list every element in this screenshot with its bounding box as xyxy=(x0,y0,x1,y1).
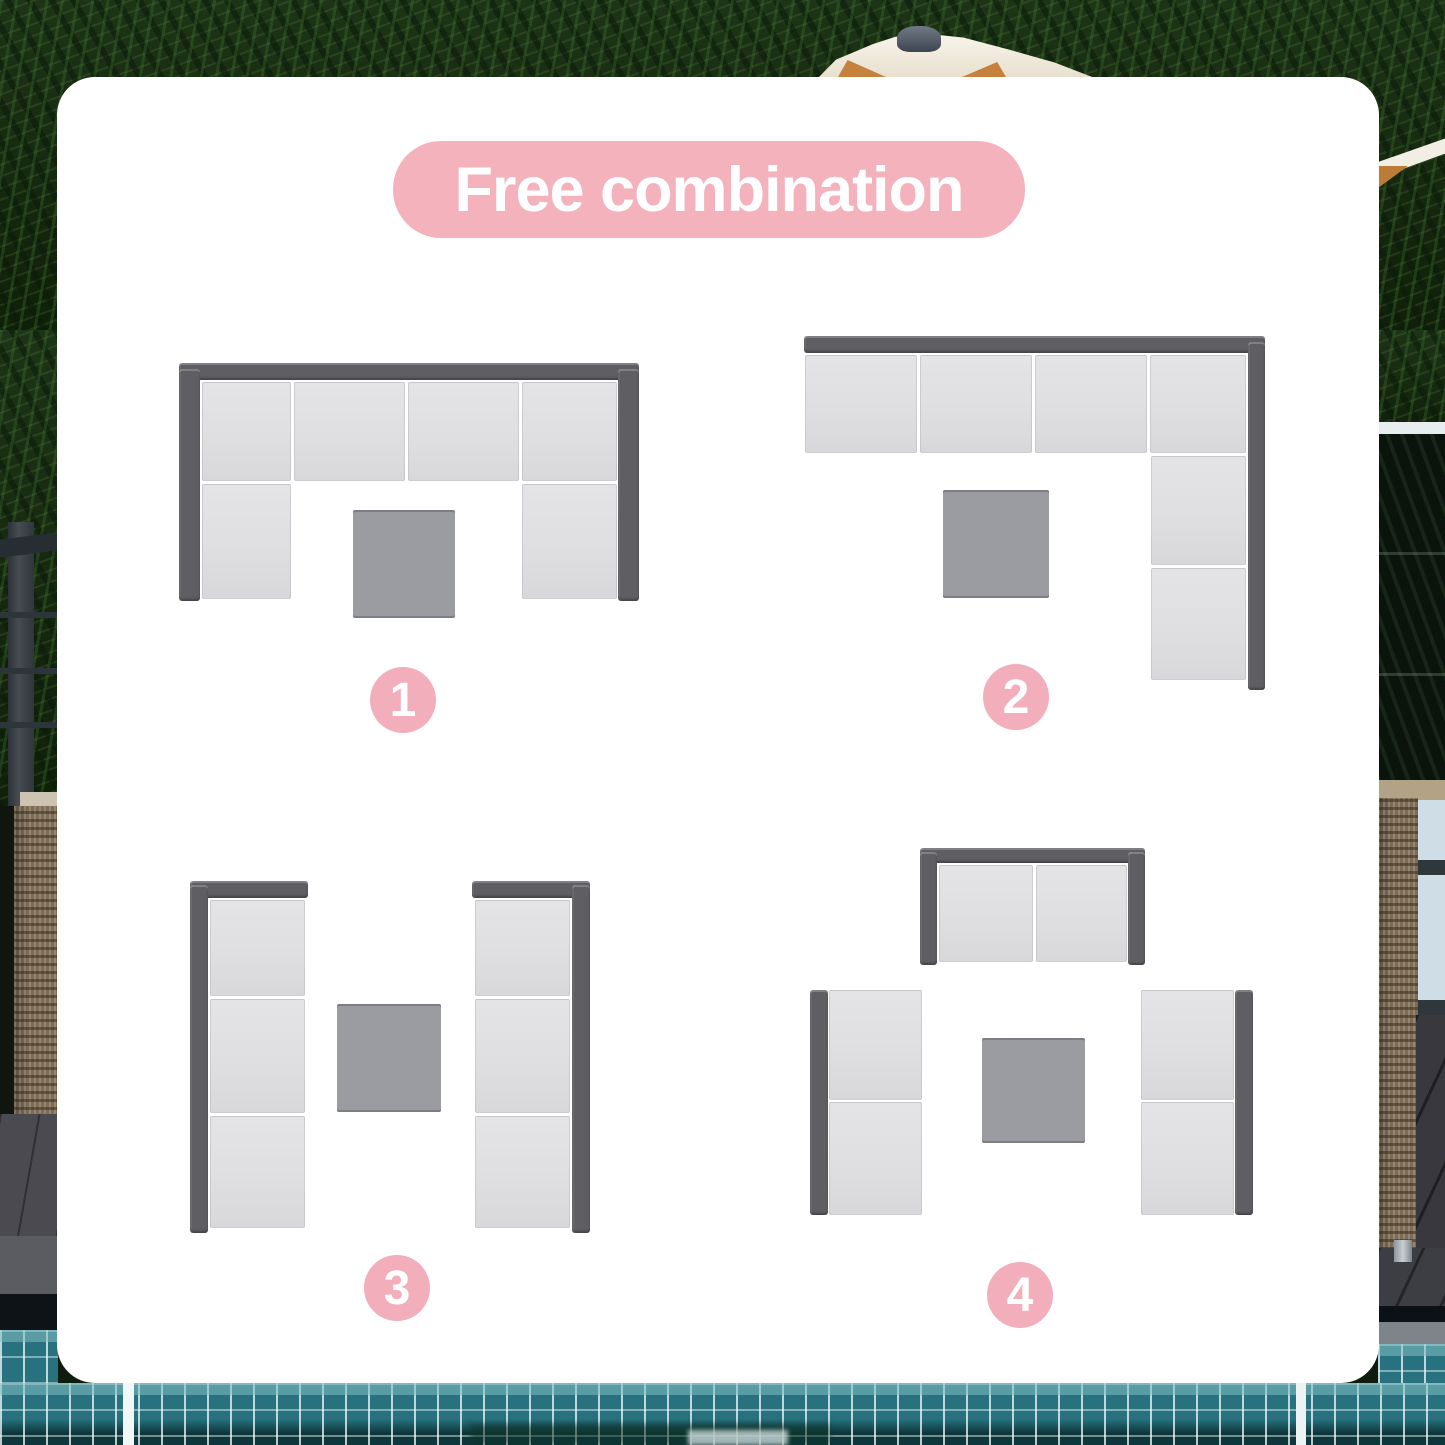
sky-through-railing xyxy=(1416,800,1445,1018)
coffee-table xyxy=(982,1038,1085,1143)
wicker-chair-left xyxy=(14,806,58,1118)
pool-water-highlight xyxy=(688,1430,788,1445)
seat-cushion xyxy=(408,382,519,481)
seat-cushion xyxy=(475,999,570,1113)
sofa-backrest xyxy=(1128,852,1145,965)
umbrella-finial xyxy=(897,26,941,52)
seat-cushion xyxy=(939,865,1033,962)
pool-coping-slab xyxy=(1378,1322,1445,1346)
sofa-backrest xyxy=(179,363,639,380)
seat-cushion xyxy=(210,1116,305,1228)
combination-diagram-1-u-shape xyxy=(179,363,639,625)
combination-diagram-3-facing-sofas xyxy=(190,881,590,1233)
seat-cushion xyxy=(1151,456,1246,565)
railing-bar xyxy=(0,722,58,728)
page-title: Free combination xyxy=(454,154,963,226)
product-card: Free combination 1 2 3 4 xyxy=(57,77,1379,1383)
seat-cushion xyxy=(1141,990,1234,1100)
glass-railing-top xyxy=(1378,422,1445,434)
seat-cushion xyxy=(829,1102,922,1215)
seat-cushion xyxy=(829,990,922,1100)
seat-cushion xyxy=(1035,355,1147,453)
seat-cushion xyxy=(805,355,917,453)
seat-cushion xyxy=(522,484,617,599)
seat-cushion xyxy=(522,382,617,481)
seat-cushion xyxy=(294,382,405,481)
sofa-backrest xyxy=(920,848,1145,863)
product-image: Free combination 1 2 3 4 xyxy=(0,0,1445,1445)
sofa-backrest xyxy=(920,852,937,965)
combination-number-badge: 3 xyxy=(364,1255,430,1321)
sofa-backrest xyxy=(810,990,828,1215)
pool-edge-highlight xyxy=(1296,1383,1306,1445)
railing-bar xyxy=(1416,1000,1445,1015)
seat-cushion xyxy=(210,999,305,1113)
coffee-table xyxy=(353,510,455,618)
combination-diagram-4-loveseat-set xyxy=(810,848,1253,1215)
pool-edge-shadow xyxy=(0,1294,58,1332)
coffee-table xyxy=(943,490,1049,598)
seat-cushion xyxy=(210,900,305,996)
seat-cushion xyxy=(202,382,291,481)
combination-number-badge: 1 xyxy=(370,667,436,733)
glass-railing-panels xyxy=(1378,434,1445,784)
sofa-backrest xyxy=(190,885,208,1233)
seat-cushion xyxy=(475,900,570,996)
coffee-table xyxy=(337,1004,441,1112)
seat-cushion xyxy=(1141,1102,1234,1215)
railing-bar xyxy=(0,612,58,618)
sofa-backrest xyxy=(618,369,639,601)
seat-cushion xyxy=(1036,865,1127,962)
title-banner: Free combination xyxy=(393,141,1025,238)
sofa-backrest xyxy=(1248,342,1265,690)
wicker-chair-right xyxy=(1378,798,1418,1250)
furniture-metal-foot xyxy=(1394,1240,1412,1262)
sofa-backrest xyxy=(804,336,1265,353)
bamboo-foliage xyxy=(1378,330,1445,435)
combination-number-badge: 2 xyxy=(983,664,1049,730)
seat-cushion xyxy=(1150,355,1246,453)
sofa-backrest xyxy=(1235,990,1253,1215)
sofa-backrest xyxy=(179,369,200,601)
seat-cushion xyxy=(1151,568,1246,680)
railing-bar xyxy=(1416,860,1445,875)
seat-cushion xyxy=(920,355,1032,453)
pool-coping-slab xyxy=(0,1236,58,1294)
combination-diagram-2-l-shape xyxy=(804,336,1265,690)
seat-cushion xyxy=(202,484,291,599)
pool-edge-highlight xyxy=(123,1383,134,1445)
combination-number-badge: 4 xyxy=(987,1262,1053,1328)
railing-bar xyxy=(0,668,58,674)
seat-cushion xyxy=(475,1116,570,1228)
wicker-chair-cushion-edge xyxy=(1378,780,1445,800)
sofa-backrest xyxy=(572,885,590,1233)
